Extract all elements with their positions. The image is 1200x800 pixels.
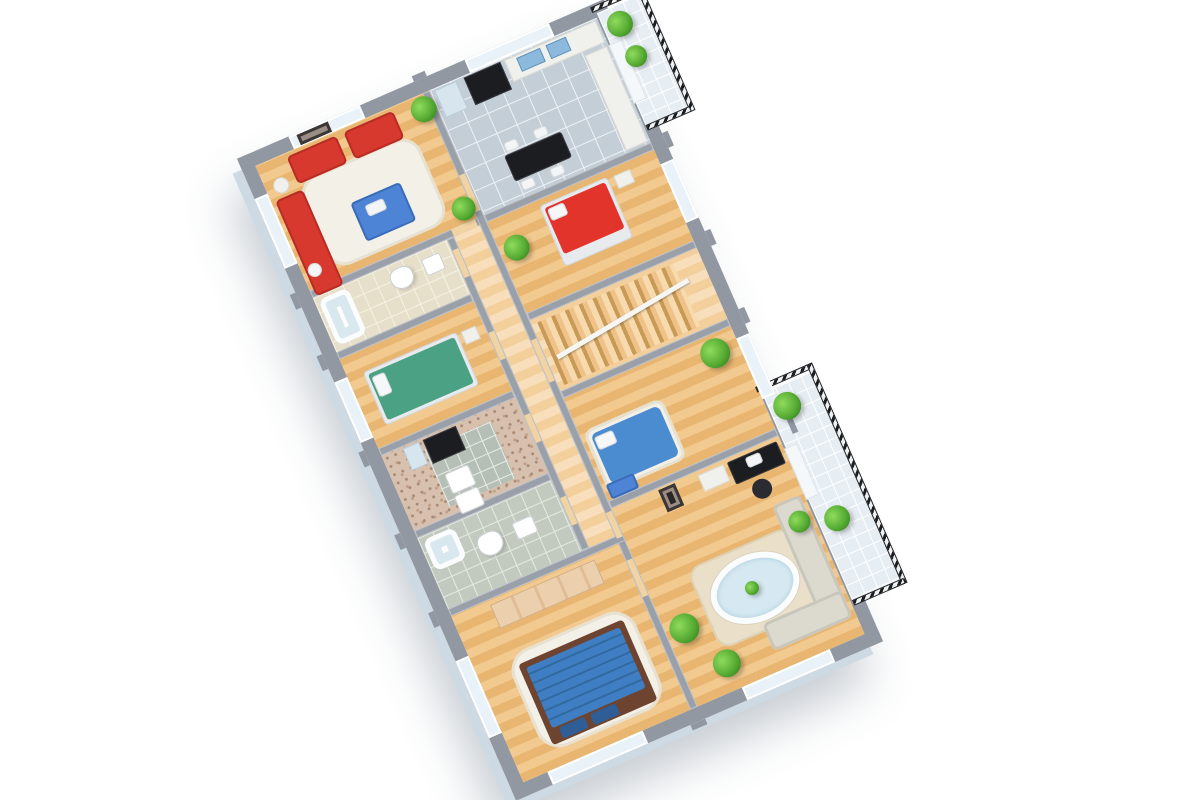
floor-plan-3d [237, 0, 883, 800]
render-canvas [0, 0, 1200, 800]
